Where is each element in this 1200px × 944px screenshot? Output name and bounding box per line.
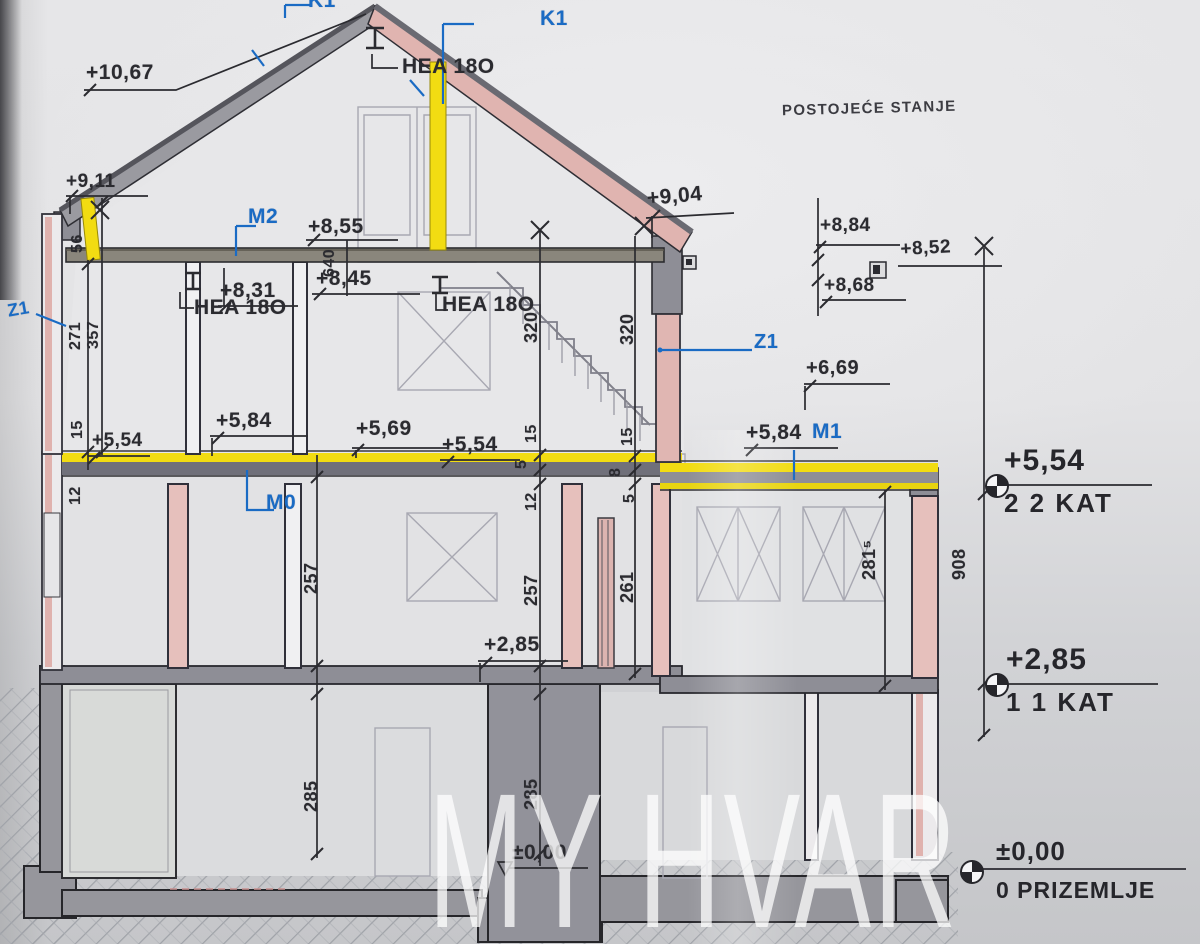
dim-plus-2-85-center: +2,85 [484, 634, 540, 656]
level-value: ±0,00 [996, 836, 1155, 867]
level-value: +2,85 [1006, 643, 1115, 677]
label-m1: M1 [812, 421, 842, 443]
dim-5-a: 5 [514, 460, 531, 469]
dim-plus-8-45: +8,45 [316, 268, 372, 290]
dim-320-b: 320 [618, 313, 637, 345]
level-name: 2 2 KAT [1004, 488, 1113, 519]
dim-261: 261 [618, 571, 637, 603]
level-name: 0 PRIZEMLJE [996, 877, 1155, 904]
label-m0: M0 [266, 492, 296, 514]
dim-plus-8-84: +8,84 [820, 216, 871, 236]
level-1-kat: +2,85 1 1 KAT [1006, 643, 1115, 718]
left-wall-window [44, 513, 60, 597]
dim-plus-5-84-left: +5,84 [216, 410, 272, 432]
label-hea-180-top: HEA 18O [402, 56, 495, 78]
label-hea-180-left: HEA 18O [194, 297, 287, 319]
dim-plus-6-69: +6,69 [806, 358, 859, 379]
dim-plus-8-55: +8,55 [308, 216, 364, 238]
dim-271: 271 [68, 322, 85, 350]
dim-plus-5-54-center: +5,54 [442, 434, 498, 456]
blueprint-page: POSTOJEĆE STANJE +5,54 2 2 KAT +2,85 1 1… [0, 0, 1200, 944]
label-z1-left: Z1 [6, 298, 31, 320]
dim-plus-9-11: +9,11 [66, 172, 116, 192]
dim-12-left: 12 [68, 486, 85, 505]
dim-5-b: 5 [622, 494, 639, 503]
dim-257-b: 257 [522, 574, 541, 606]
level-name: 1 1 KAT [1006, 687, 1115, 718]
dim-281-5: 281⁵ [860, 540, 879, 581]
dim-plus-8-68: +8,68 [824, 276, 875, 296]
dim-15-left: 15 [70, 420, 87, 439]
dim-12-a: 12 [524, 492, 541, 511]
ground-window [62, 684, 176, 878]
dim-plus-10-67: +10,67 [86, 62, 154, 84]
dim-plus-5-84-right: +5,84 [746, 422, 802, 444]
dim-257-a: 257 [302, 562, 321, 594]
watermark: MY HVAR [428, 770, 959, 944]
dim-plus-5-69: +5,69 [356, 418, 412, 440]
dim-56: 56 [70, 234, 87, 253]
dim-15-a: 15 [524, 424, 541, 443]
level-2-kat: +5,54 2 2 KAT [1004, 444, 1113, 519]
dim-285-a: 285 [302, 780, 321, 812]
dim-908: 908 [950, 548, 969, 580]
dim-8-b: 8 [608, 468, 625, 477]
dim-plus-8-52: +8,52 [900, 237, 952, 260]
dim-357: 357 [86, 321, 103, 349]
label-k1-right: K1 [540, 8, 568, 30]
label-k1-top: K1 [308, 0, 336, 12]
dim-320-a: 320 [522, 311, 541, 343]
attic-slab [66, 248, 664, 262]
dim-plus-5-54-left: +5,54 [92, 431, 143, 451]
label-z1-right: Z1 [754, 332, 778, 353]
label-m2: M2 [248, 206, 278, 228]
level-value: +5,54 [1004, 444, 1113, 478]
dim-15-b: 15 [620, 427, 637, 446]
level-prizemlje: ±0,00 0 PRIZEMLJE [996, 836, 1155, 904]
